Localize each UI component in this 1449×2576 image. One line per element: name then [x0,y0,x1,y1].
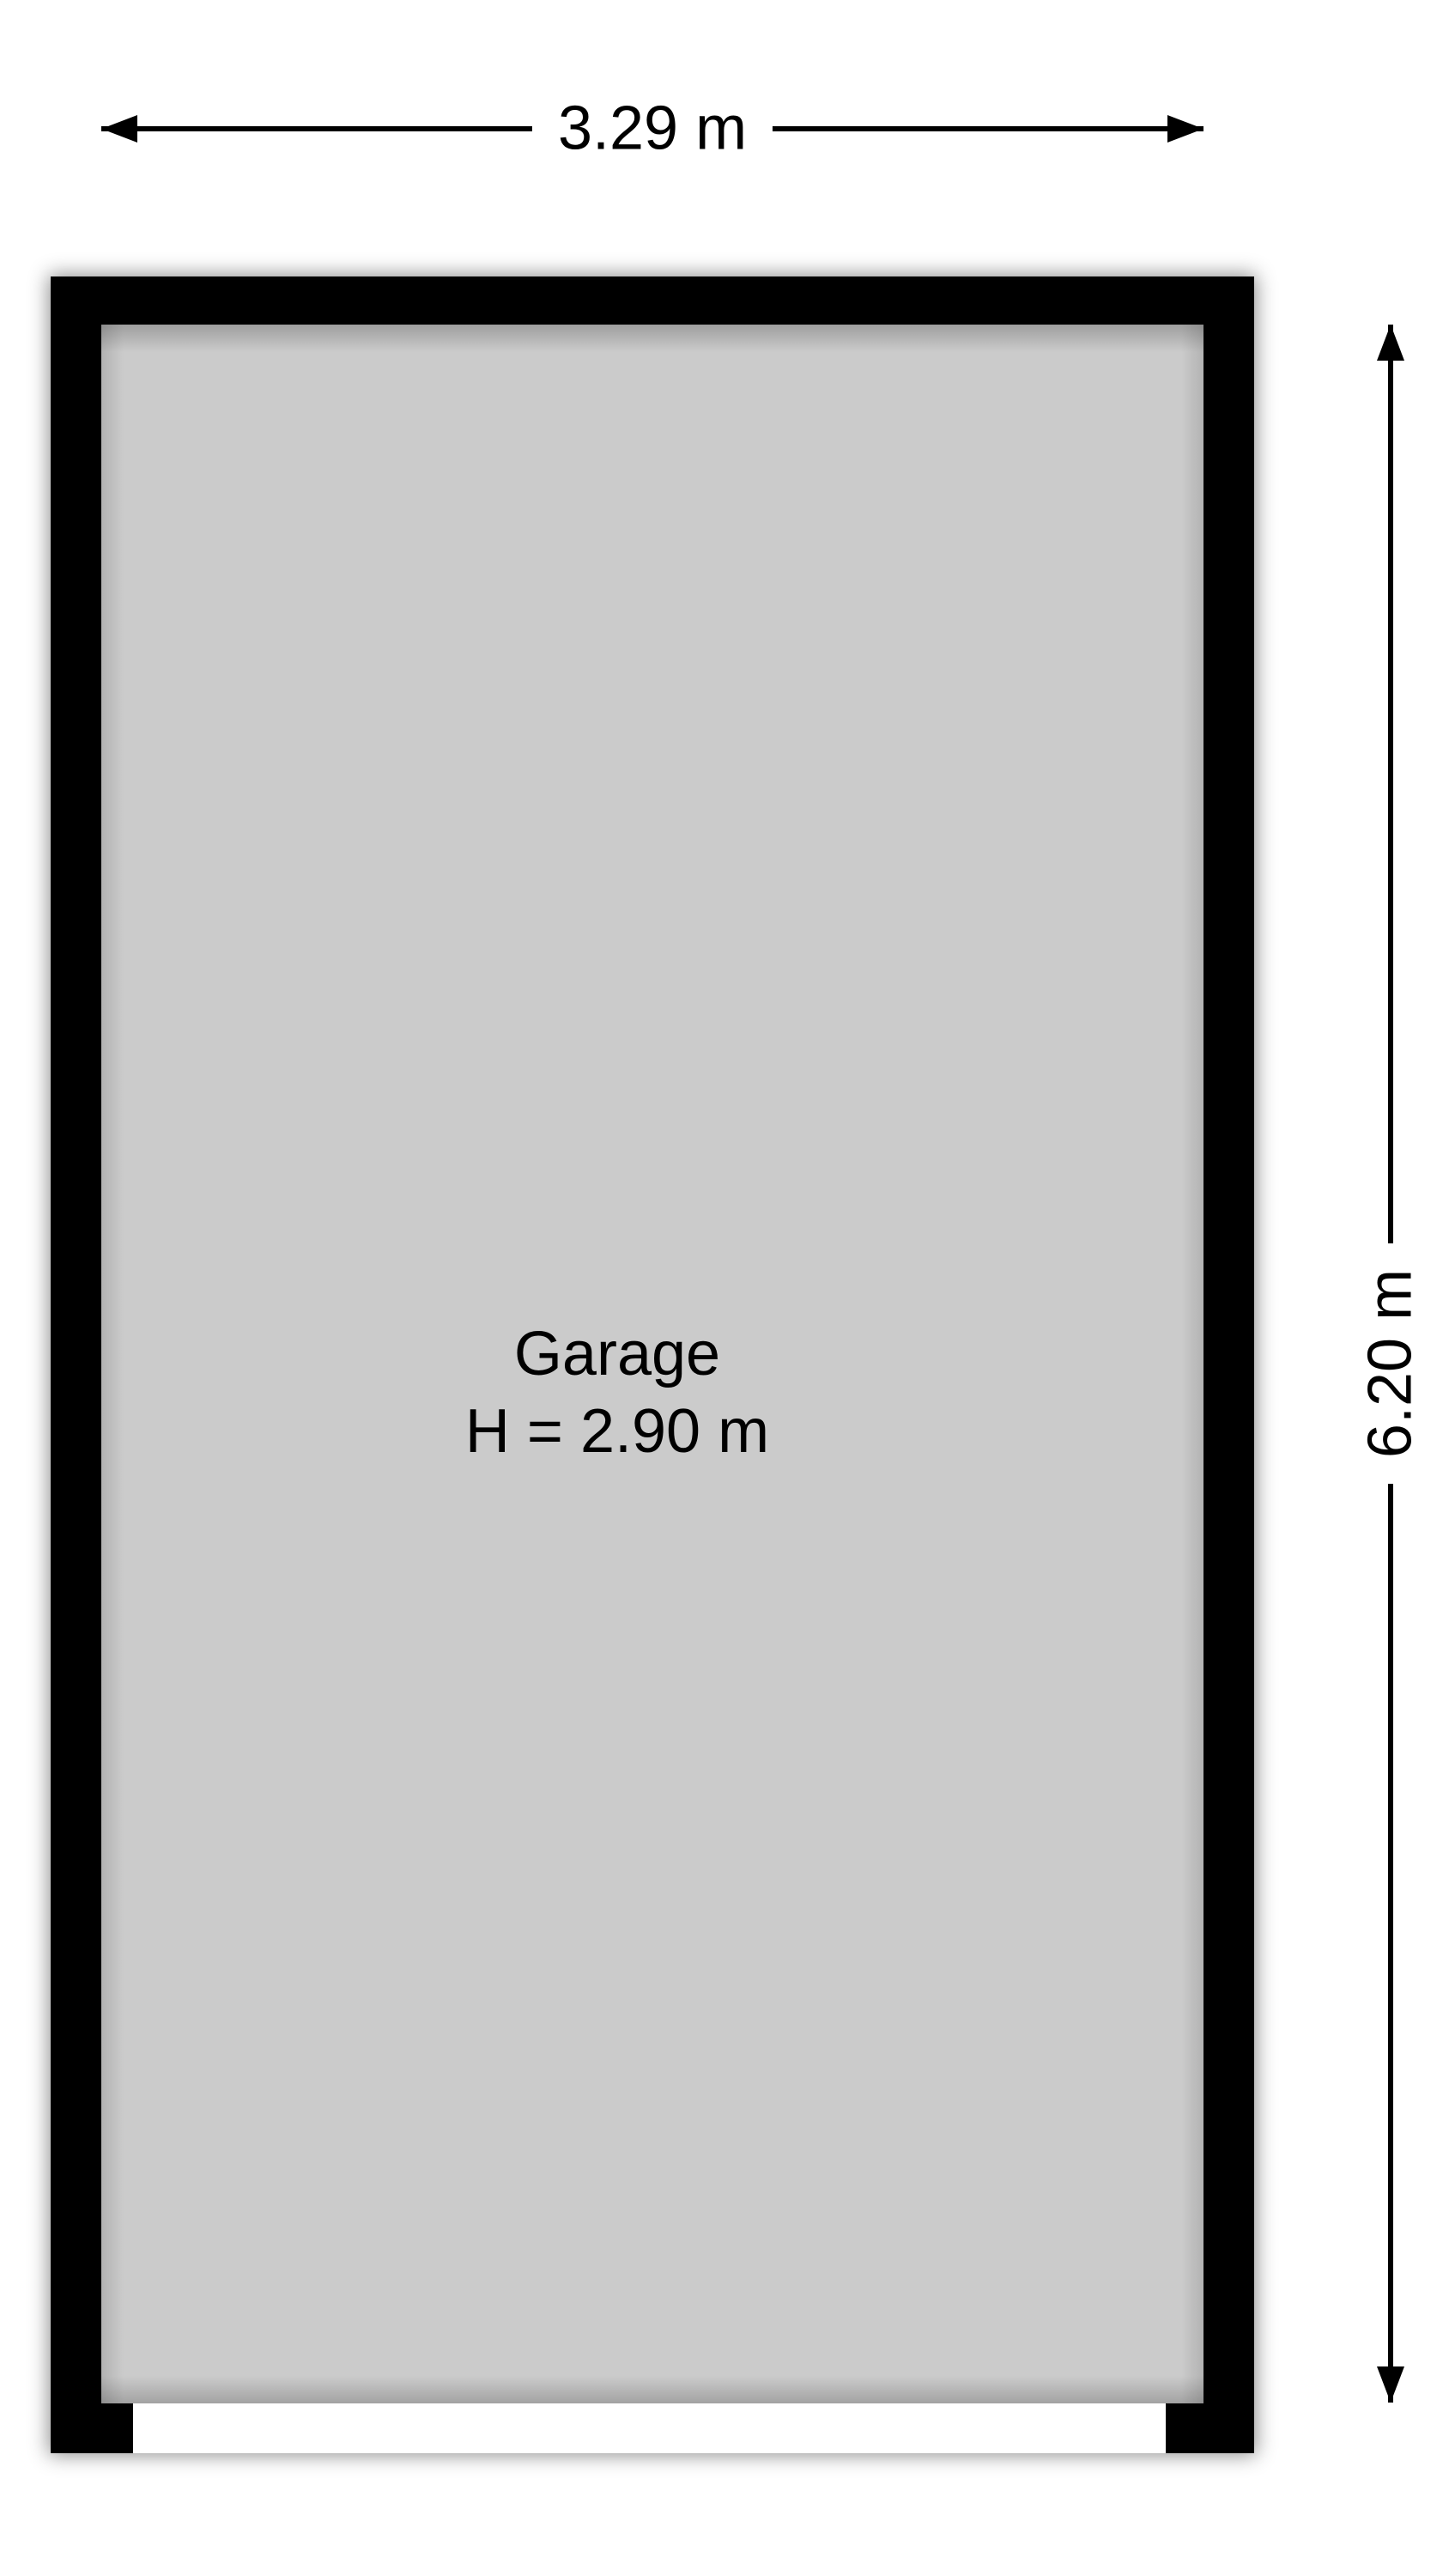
arrow-down-icon [1377,2366,1404,2403]
width-dimension: 3.29 m [101,126,1203,131]
garage-door-opening [133,2403,1166,2453]
floorplan-canvas: 3.29 m Garage H = 2.90 m 6.20 m [0,0,1449,2576]
arrow-up-icon [1377,325,1404,361]
room-label: Garage H = 2.90 m [465,1315,769,1470]
room-ceiling-height: H = 2.90 m [465,1393,769,1470]
arrow-left-icon [101,115,137,143]
arrow-right-icon [1167,115,1203,143]
width-dimension-label: 3.29 m [532,94,773,165]
room-name: Garage [465,1315,769,1393]
depth-dimension-label: 6.20 m [1355,1243,1427,1484]
depth-dimension: 6.20 m [1388,325,1393,2403]
